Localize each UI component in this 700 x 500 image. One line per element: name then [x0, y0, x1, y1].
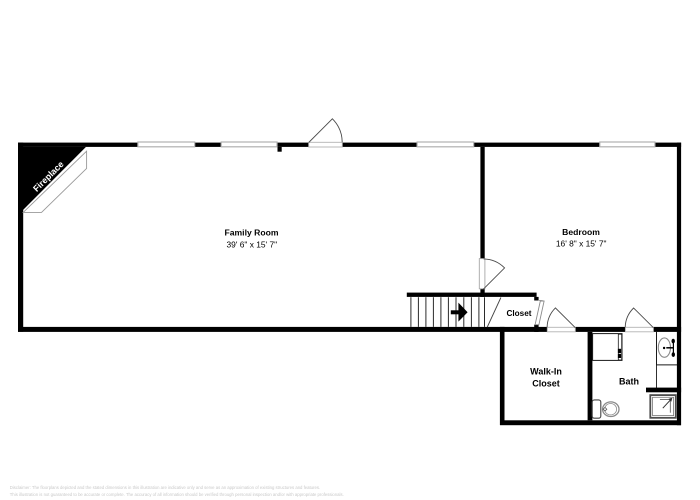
svg-text:Closet: Closet [532, 379, 560, 389]
svg-text:39' 6" x 15' 7": 39' 6" x 15' 7" [227, 239, 278, 249]
svg-text:Disclaimer: The floorplans dep: Disclaimer: The floorplans depicted and … [10, 485, 320, 490]
svg-text:This illustration is not guara: This illustration is not guaranteed to b… [10, 492, 344, 497]
svg-text:Walk-In: Walk-In [530, 367, 562, 377]
svg-text:Family Room: Family Room [225, 227, 279, 237]
svg-text:Closet: Closet [506, 309, 531, 318]
svg-text:Bath: Bath [619, 377, 639, 387]
svg-text:Bedroom: Bedroom [562, 227, 600, 237]
svg-text:16' 8" x 15' 7": 16' 8" x 15' 7" [556, 238, 607, 248]
